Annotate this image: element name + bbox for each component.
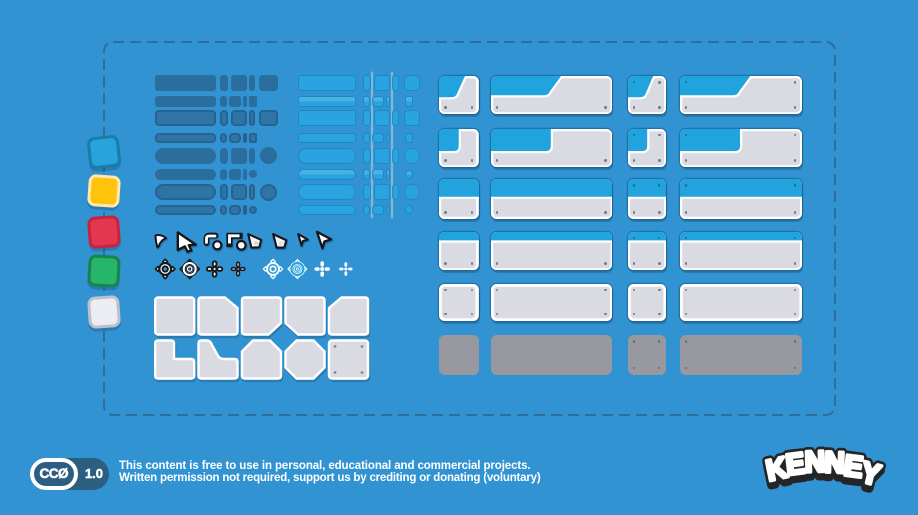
svg-text:N: N (804, 446, 825, 480)
svg-text:E: E (784, 447, 806, 482)
svg-text:N: N (824, 446, 845, 480)
